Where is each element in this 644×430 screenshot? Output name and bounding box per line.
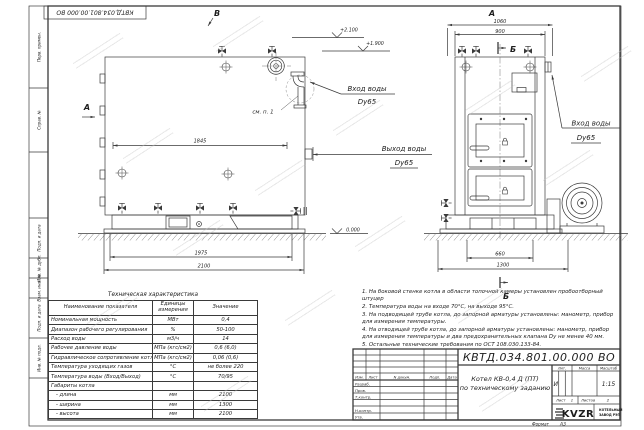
tb-row-nkontr: Н.контр. xyxy=(355,408,372,413)
dim-label-900: 900 xyxy=(495,29,505,35)
format-label: Формат xyxy=(532,422,550,427)
table-cell-units: °С xyxy=(153,363,194,372)
lit-value: И xyxy=(554,381,559,388)
tb-row-razrab: Разраб. xyxy=(355,381,370,386)
door-handle xyxy=(470,146,489,150)
tb-row-utv: Утв. xyxy=(355,414,363,419)
table-title: Техническая характеристика xyxy=(48,290,258,300)
table-cell-units: МВт xyxy=(153,316,194,325)
valve-icon xyxy=(268,46,276,56)
technical-characteristics-table: Техническая характеристика Наименование … xyxy=(48,290,258,419)
table-cell-value: 2100 xyxy=(194,410,258,419)
frame-field-label: Взам. инв. № xyxy=(37,274,42,301)
lit-label: Лит. xyxy=(557,367,566,371)
valve-icon xyxy=(118,203,126,213)
dim-label-2100: 2100 xyxy=(198,264,211,270)
crosshair-mark xyxy=(460,61,473,74)
note-item: 1. На боковой стенке котла в области топ… xyxy=(362,289,620,303)
drain-valve-icon xyxy=(290,207,300,215)
table-cell-name: Рабочее давление воды xyxy=(49,344,153,353)
inlet-dn-label: Dy65 xyxy=(358,98,377,106)
table-cell-units: °С xyxy=(153,372,194,381)
doc-number: КВТД.034.801.00.000 ВО xyxy=(463,351,615,364)
product-title-line1: Котел КВ-0,4 Д (ПТ) xyxy=(471,375,539,383)
logo-text: KVZR xyxy=(562,409,594,420)
frame-field-label: Подп. и дата xyxy=(37,304,42,332)
dim-label-660: 660 xyxy=(495,252,505,258)
view-mark-a: А xyxy=(488,9,495,18)
lock-icon xyxy=(503,187,508,194)
company-name-line1: КОТЕЛЬНЫЙ xyxy=(599,407,623,412)
outlet-label: Выход воды xyxy=(382,145,427,153)
table-grid: Наименование показателя Единицы измерени… xyxy=(48,300,258,419)
sheets-label: Листов xyxy=(580,398,596,403)
table-cell-name: - длина xyxy=(49,391,153,400)
note-item: 4. На отводящей трубе котла, до запорной… xyxy=(362,327,620,341)
table-cell-name: - ширина xyxy=(49,401,153,410)
frame-field-label: Справ. № xyxy=(37,110,42,129)
view-mark-v: В xyxy=(214,9,220,18)
valve-icon xyxy=(196,203,204,213)
tb-row-tkontr: Т.контр. xyxy=(355,394,371,399)
valve-icon xyxy=(154,203,162,213)
boiler-front-view: А 1060 900 Б xyxy=(424,9,628,301)
outlet-stub xyxy=(305,149,312,159)
dim-label-1975: 1975 xyxy=(195,251,208,257)
stamp-doc-number: КВТД.034.801.00.000 ВО xyxy=(56,9,133,16)
lock-icon xyxy=(503,138,508,145)
inlet-label: Вход воды xyxy=(347,85,387,93)
tb-header-list: Лист xyxy=(367,375,378,379)
format-value: А3 xyxy=(559,422,566,428)
title-block: КВТД.034.801.00.000 ВО Изм. Лист N докум… xyxy=(353,349,623,428)
scale-value: 1:15 xyxy=(602,381,616,388)
elevation-zero-label: 0.000 xyxy=(346,228,360,234)
top-stamp: КВТД.034.801.00.000 ВО xyxy=(44,6,146,19)
crosshair-mark xyxy=(220,61,233,74)
mass-label: Масса xyxy=(579,367,590,371)
note-item: 2. Температура воды на входе 70°С, на вы… xyxy=(362,304,620,311)
valve-icon xyxy=(472,46,480,56)
sheet-value: 1 xyxy=(571,398,573,403)
valve-icon xyxy=(229,203,237,213)
frame-field-label: Подп. и дата xyxy=(37,224,42,252)
table-cell-units: МПа (кгс/см2) xyxy=(153,354,194,363)
ground-hatch xyxy=(424,234,628,241)
table-cell-value: 0,6 (6,0) xyxy=(194,344,258,353)
table-cell-units: мм xyxy=(153,410,194,419)
table-cell-name: Диапазон рабочего регулирования xyxy=(49,325,153,334)
company-name-line2: ЗАВОД РЭП xyxy=(599,413,620,417)
dim-label-1060: 1060 xyxy=(494,19,507,25)
note-item: 3. На подводящей трубе котла, до запорно… xyxy=(362,312,620,326)
drawing-sheet: Перв. примен. Справ. № Подп. и дата Инв.… xyxy=(0,0,644,430)
table-cell-value: 50-100 xyxy=(194,325,258,334)
frame-field-label: Инв. № подл. xyxy=(37,344,42,372)
table-cell-name: Температура воды (Вход/Выход) xyxy=(49,372,153,381)
table-cell-name: Габариты котла xyxy=(49,382,153,391)
outlet-dn-label: Dy65 xyxy=(395,159,414,167)
section-mark-label: Б xyxy=(510,45,516,54)
table-cell-name: - высота xyxy=(49,410,153,419)
crosshair-mark xyxy=(116,167,129,180)
table-cell-units: мм xyxy=(153,391,194,400)
dim-label-1845: 1845 xyxy=(194,139,207,145)
table-cell-value: 2100 xyxy=(194,391,258,400)
col-header-name: Наименование показателя xyxy=(49,301,153,316)
technical-notes: 1. На боковой стенке котла в области топ… xyxy=(362,289,620,350)
table-cell-value xyxy=(194,382,258,391)
table-cell-units xyxy=(153,382,194,391)
table-cell-value: 0,4 xyxy=(194,316,258,325)
sheet-label: Лист xyxy=(555,398,566,403)
table-cell-units: м3/ч xyxy=(153,335,194,344)
valve-icon xyxy=(441,199,451,207)
company-logo: KVZR КОТЕЛЬНЫЙ ЗАВОД РЭП xyxy=(555,407,623,420)
table-cell-units: мм xyxy=(153,401,194,410)
table-cell-value: 0,06 (0,6) xyxy=(194,354,258,363)
table-cell-name: Температура уходящих газов xyxy=(49,363,153,372)
detail-reference-label: см. п. 1 xyxy=(252,110,273,116)
crosshair-mark xyxy=(222,168,235,181)
table-cell-name: Гидравлическое сопротивление котла xyxy=(49,354,153,363)
table-cell-name: Расход воды xyxy=(49,335,153,344)
product-title-line2: по техническому заданию xyxy=(460,384,551,392)
valve-icon xyxy=(458,46,466,56)
door-handle xyxy=(470,196,489,200)
tb-header-podp: Подп. xyxy=(430,375,441,379)
table-cell-units: % xyxy=(153,325,194,334)
table-cell-value: 70/95 xyxy=(194,372,258,381)
col-header-units: Единицы измерения xyxy=(153,301,194,316)
table-cell-units: МПа (кгс/см2) xyxy=(153,344,194,353)
crosshair-mark xyxy=(524,61,537,74)
table-cell-value: не более 220 xyxy=(194,363,258,372)
tb-header-izm: Изм. xyxy=(355,375,363,379)
tb-header-data: Дата xyxy=(446,375,456,379)
tb-row-prov: Пров. xyxy=(355,388,366,393)
view-mark-a: А xyxy=(83,103,90,112)
scale-label: Масштаб xyxy=(600,367,618,371)
top-hatch xyxy=(512,73,537,92)
elevation-mid-label: +1.900 xyxy=(366,41,384,47)
frame-left-fields: Перв. примен. Справ. № Подп. и дата Инв.… xyxy=(37,32,42,372)
table-cell-value: 14 xyxy=(194,335,258,344)
col-header-value: Значение xyxy=(194,301,258,316)
sheets-value: 2 xyxy=(607,398,610,403)
inlet-label: Вход воды xyxy=(571,120,611,128)
boiler-side-view: В А 1845 xyxy=(78,9,432,274)
valve-icon xyxy=(218,46,226,56)
inlet-dn-label: Dy65 xyxy=(577,134,596,142)
table-cell-value: 1300 xyxy=(194,401,258,410)
ground-hatch xyxy=(78,234,326,241)
valve-icon xyxy=(524,46,532,56)
note-item: 5. Остальные технические требования по О… xyxy=(362,342,620,349)
elevation-top-label: +2.100 xyxy=(340,28,358,34)
blower-fan xyxy=(547,183,604,233)
table-cell-name: Номинальная мощность xyxy=(49,316,153,325)
frame-field-label: Перв. примен. xyxy=(37,32,42,62)
dim-label-1300: 1300 xyxy=(497,263,510,269)
tb-header-docnum: N докум. xyxy=(394,375,411,379)
